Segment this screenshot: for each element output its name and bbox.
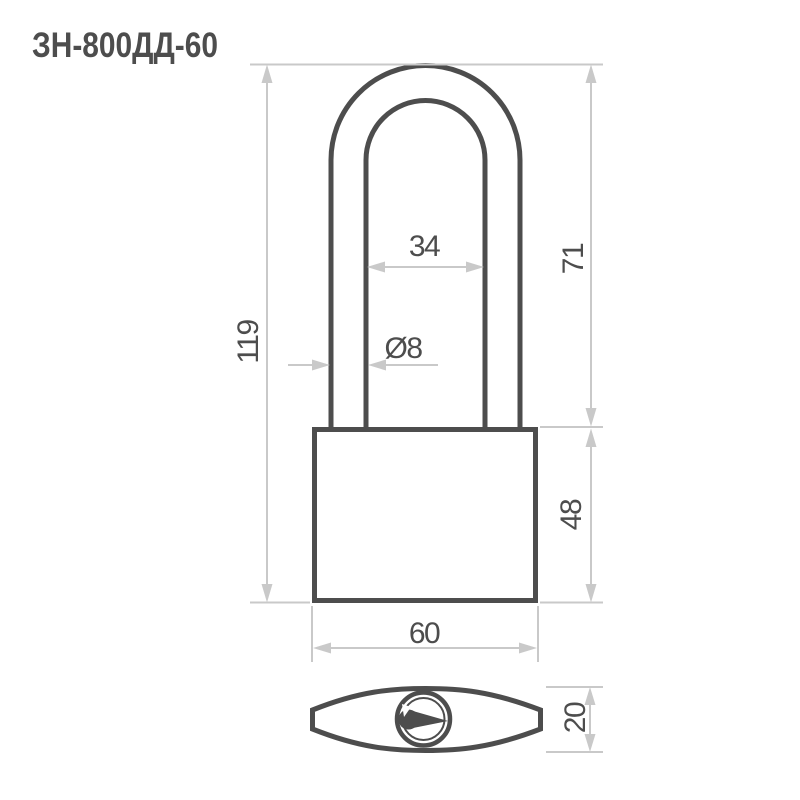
arrow-body-depth-bottom	[585, 734, 596, 752]
arrow-rod-right	[368, 360, 386, 371]
label-body-depth: 20	[559, 702, 592, 733]
label-inner-width: 34	[409, 230, 440, 263]
label-shackle-height: 71	[557, 243, 590, 274]
front-view	[315, 66, 536, 601]
arrow-inner-width-right	[466, 262, 484, 273]
drawing-title: ЗН-800ДД-60	[32, 26, 218, 65]
label-rod-diameter: Ø8	[384, 332, 422, 365]
arrow-body-height-bottom	[586, 584, 597, 603]
arrow-body-width-right	[519, 643, 537, 654]
arrow-body-width-left	[313, 643, 331, 654]
arrow-rod-left	[312, 360, 330, 371]
bottom-view	[313, 689, 541, 751]
arrow-total-height-top	[262, 65, 273, 84]
lock-body	[315, 430, 536, 601]
label-body-width: 60	[409, 617, 440, 650]
arrow-body-height-top	[586, 429, 597, 448]
label-total-height: 119	[232, 320, 265, 364]
padlock-dimension-drawing: ЗН-800ДД-60 34 Ø8 119 71 48 60 20	[0, 0, 800, 800]
arrow-shackle-height-top	[586, 65, 597, 84]
arrow-shackle-height-bottom	[586, 408, 597, 427]
label-body-height: 48	[555, 499, 588, 530]
arrow-total-height-bottom	[262, 584, 273, 603]
technical-drawing-page: ЗН-800ДД-60 34 Ø8 119 71 48 60 20	[0, 0, 800, 800]
arrow-body-depth-top	[585, 687, 596, 705]
arrow-inner-width-left	[367, 262, 385, 273]
